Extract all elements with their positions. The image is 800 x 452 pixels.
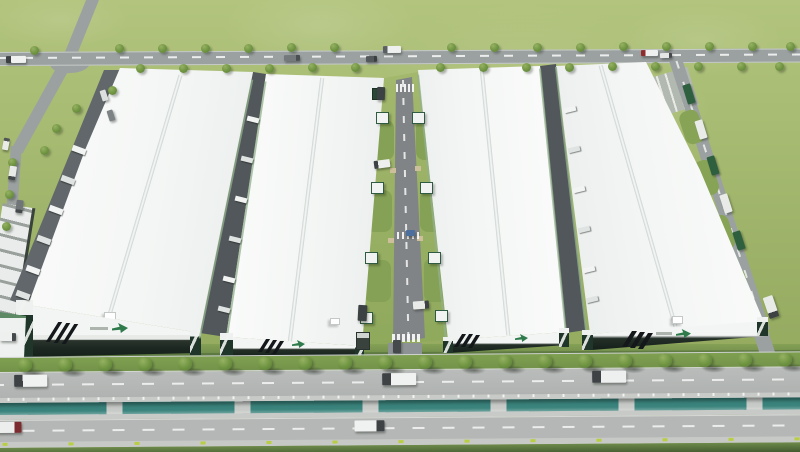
truck (706, 155, 719, 176)
docked-trailer (583, 266, 596, 274)
tree (2, 222, 11, 231)
tree (330, 43, 339, 52)
truck (382, 373, 416, 385)
tree (498, 354, 512, 368)
truck (15, 200, 24, 214)
docked-trailer (578, 226, 591, 234)
tree (201, 44, 210, 53)
tree (565, 63, 574, 72)
tree (694, 62, 703, 71)
docked-trailer (223, 276, 236, 284)
truck (413, 300, 430, 309)
tree (298, 356, 312, 370)
tree (40, 146, 49, 155)
docked-trailer (71, 145, 86, 155)
tree (748, 42, 757, 51)
truck (6, 56, 26, 63)
tree (5, 190, 14, 199)
tree (18, 358, 32, 372)
tree (265, 64, 274, 73)
truck (0, 422, 22, 433)
truck (14, 375, 47, 387)
tree (775, 62, 784, 71)
truck (284, 55, 300, 61)
tree (115, 44, 124, 53)
tree (533, 43, 542, 52)
truck (719, 193, 732, 214)
docked-trailer (564, 106, 577, 114)
docked-trailer (60, 175, 75, 185)
docked-trailer (218, 306, 231, 314)
truck (682, 83, 695, 104)
tree (447, 43, 456, 52)
truck (377, 87, 385, 100)
docked-trailer (229, 236, 242, 244)
docked-trailer (247, 116, 260, 124)
truck (106, 109, 115, 121)
tree (458, 355, 472, 369)
tree (108, 86, 117, 95)
truck (592, 371, 626, 383)
tree (490, 43, 499, 52)
truck (358, 305, 368, 321)
truck (393, 340, 401, 353)
tree (538, 354, 552, 368)
truck (763, 295, 780, 319)
boulevard-objects-layer (0, 351, 800, 452)
docked-trailer (568, 146, 581, 154)
truck (732, 230, 745, 251)
tree (705, 42, 714, 51)
tree (651, 62, 660, 71)
tree (178, 357, 192, 371)
truck (406, 230, 415, 236)
tree (737, 62, 746, 71)
tree (578, 354, 592, 368)
docked-trailer (235, 196, 248, 204)
tree (58, 357, 72, 371)
docked-trailer (25, 265, 40, 275)
docked-trailer (48, 205, 63, 215)
truck (641, 50, 658, 56)
tree (351, 63, 360, 72)
tree (308, 63, 317, 72)
tree (244, 44, 253, 53)
tree (778, 352, 792, 366)
tree (98, 357, 112, 371)
tree (287, 43, 296, 52)
tree (698, 353, 712, 367)
docked-trailer (241, 156, 254, 164)
tree (618, 354, 632, 368)
tree (179, 64, 188, 73)
tree (158, 44, 167, 53)
tree (338, 355, 352, 369)
tree (662, 42, 671, 51)
tree (418, 355, 432, 369)
tree (222, 64, 231, 73)
truck (366, 56, 377, 62)
tree (52, 124, 61, 133)
truck (694, 119, 707, 140)
tree (436, 63, 445, 72)
tree (786, 42, 795, 51)
tree (258, 356, 272, 370)
truck (383, 46, 401, 53)
tree (479, 63, 488, 72)
truck (0, 333, 16, 341)
tree (136, 64, 145, 73)
tree (608, 62, 617, 71)
front-boulevard (0, 351, 800, 452)
tree (738, 353, 752, 367)
truck (354, 420, 384, 431)
tree (619, 42, 628, 51)
tree (522, 63, 531, 72)
truck (660, 53, 672, 58)
docked-trailer (15, 290, 30, 300)
tree (30, 46, 39, 55)
docked-trailer (573, 186, 586, 194)
tree (72, 104, 81, 113)
tree (218, 356, 232, 370)
docked-trailer (36, 235, 51, 245)
tree (138, 357, 152, 371)
truck (2, 138, 10, 151)
truck (374, 159, 391, 169)
docked-trailer (586, 296, 599, 304)
aerial-industrial-park-render: Aerial 3D rendering of a logistics indus… (0, 0, 800, 452)
truck (8, 166, 17, 181)
tree (658, 353, 672, 367)
tree (378, 355, 392, 369)
tree (576, 43, 585, 52)
